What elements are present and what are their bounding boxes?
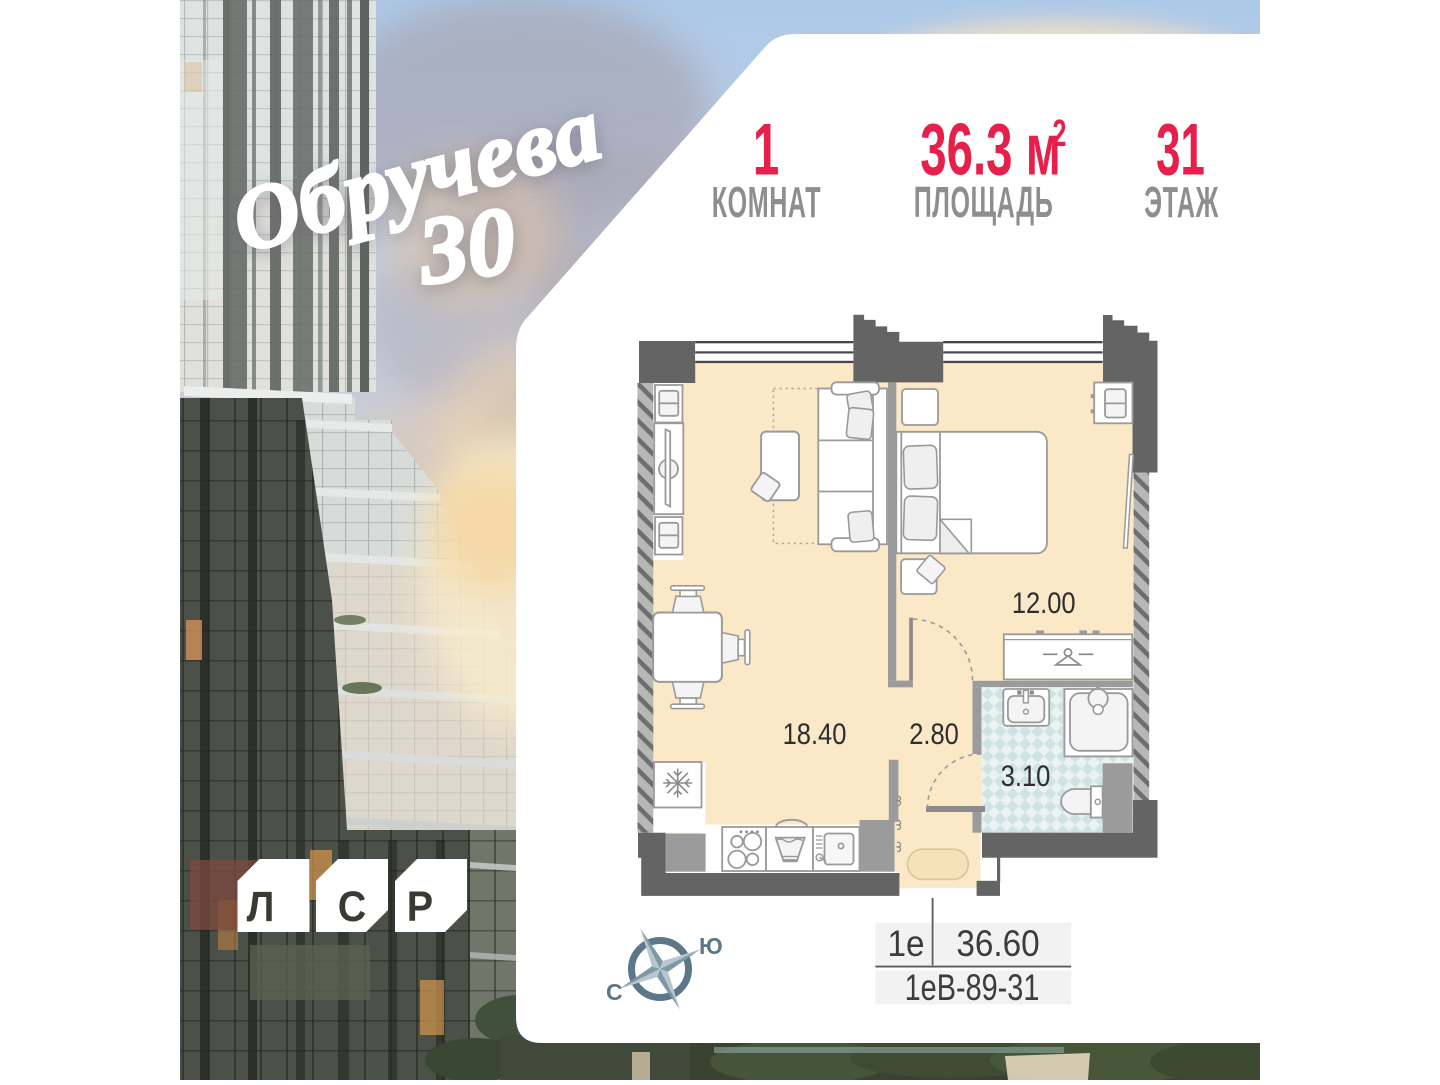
svg-text:12.00: 12.00: [1012, 586, 1076, 619]
svg-text:1е: 1е: [887, 923, 924, 964]
svg-text:КОМНАТ: КОМНАТ: [712, 178, 821, 227]
svg-text:30: 30: [411, 185, 522, 304]
svg-text:2.80: 2.80: [909, 717, 959, 750]
svg-text:Р: Р: [407, 882, 433, 930]
svg-text:ЭТАЖ: ЭТАЖ: [1144, 178, 1219, 227]
svg-text:С: С: [338, 882, 367, 930]
svg-text:ПЛОЩАДЬ: ПЛОЩАДЬ: [914, 178, 1054, 227]
svg-text:1еВ-89-31: 1еВ-89-31: [905, 968, 1040, 1009]
svg-text:2: 2: [1053, 112, 1067, 155]
svg-text:3.10: 3.10: [1001, 759, 1051, 792]
svg-text:Ю: Ю: [699, 933, 723, 959]
svg-text:Л: Л: [247, 882, 275, 930]
svg-text:18.40: 18.40: [783, 717, 847, 750]
svg-text:36.60: 36.60: [956, 923, 1039, 964]
svg-text:С: С: [606, 979, 623, 1005]
